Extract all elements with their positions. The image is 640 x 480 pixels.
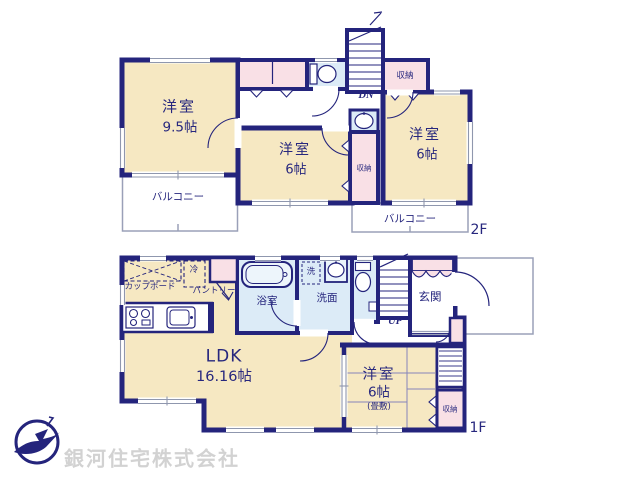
closet-2f-top-label: 収納 (396, 72, 413, 81)
room-2f-center-name: 洋室 (279, 143, 311, 157)
floor-tag-2f: 2F (471, 223, 488, 237)
washer-label: 洗 (307, 268, 316, 277)
ldk-size: 16.16帖 (196, 370, 252, 385)
room-2f-95-name: 洋室 (162, 100, 196, 115)
fridge-label: 冷 (190, 266, 199, 275)
pantry-label: パントリー (193, 287, 236, 296)
ldk-name: LDK (206, 349, 243, 366)
porch-1f (455, 258, 533, 334)
company-watermark: 銀河住宅株式会社 (64, 443, 240, 472)
bath-label: 浴室 (257, 296, 278, 307)
floor-tag-1f: 1F (470, 421, 487, 435)
toilet-2f (307, 60, 347, 89)
company-logo (14, 417, 60, 463)
room-2f-right-name: 洋室 (409, 128, 441, 142)
room-2f-95-size: 9.5帖 (163, 121, 198, 135)
hatch-area-1f (437, 347, 464, 387)
room-1f-size: 6帖 (368, 386, 390, 400)
closet-2f-mid-label: 収納 (357, 164, 372, 172)
room-2f-right-size: 6帖 (416, 149, 437, 162)
room-1f-note: (畳敷) (367, 403, 391, 412)
room-1f-name: 洋室 (363, 368, 396, 383)
balcony-right-label: バルコニー (384, 214, 436, 225)
up-label: UP (388, 317, 402, 328)
dn-label: DN (358, 91, 373, 102)
room-2f-95 (122, 60, 238, 175)
stairs-2f (347, 12, 383, 92)
cupboard-label: カップボード (124, 283, 175, 292)
stairs-1f (378, 254, 410, 318)
closet-1f-label: 収納 (443, 405, 458, 413)
balcony-left-2f (123, 175, 238, 231)
toilet-1f (352, 258, 378, 322)
floor-plan-drawing (0, 0, 640, 480)
room-2f-center-size: 6帖 (285, 164, 306, 177)
washbasin-2f (350, 110, 378, 132)
entrance-label: 玄関 (419, 291, 442, 303)
floor-plan: 洋室 9.5帖 洋室 6帖 洋室 6帖 バルコニー バルコニー 収納 収納 DN… (0, 0, 640, 480)
washroom-label: 洗面 (317, 293, 338, 304)
balcony-left-label: バルコニー (152, 192, 204, 203)
